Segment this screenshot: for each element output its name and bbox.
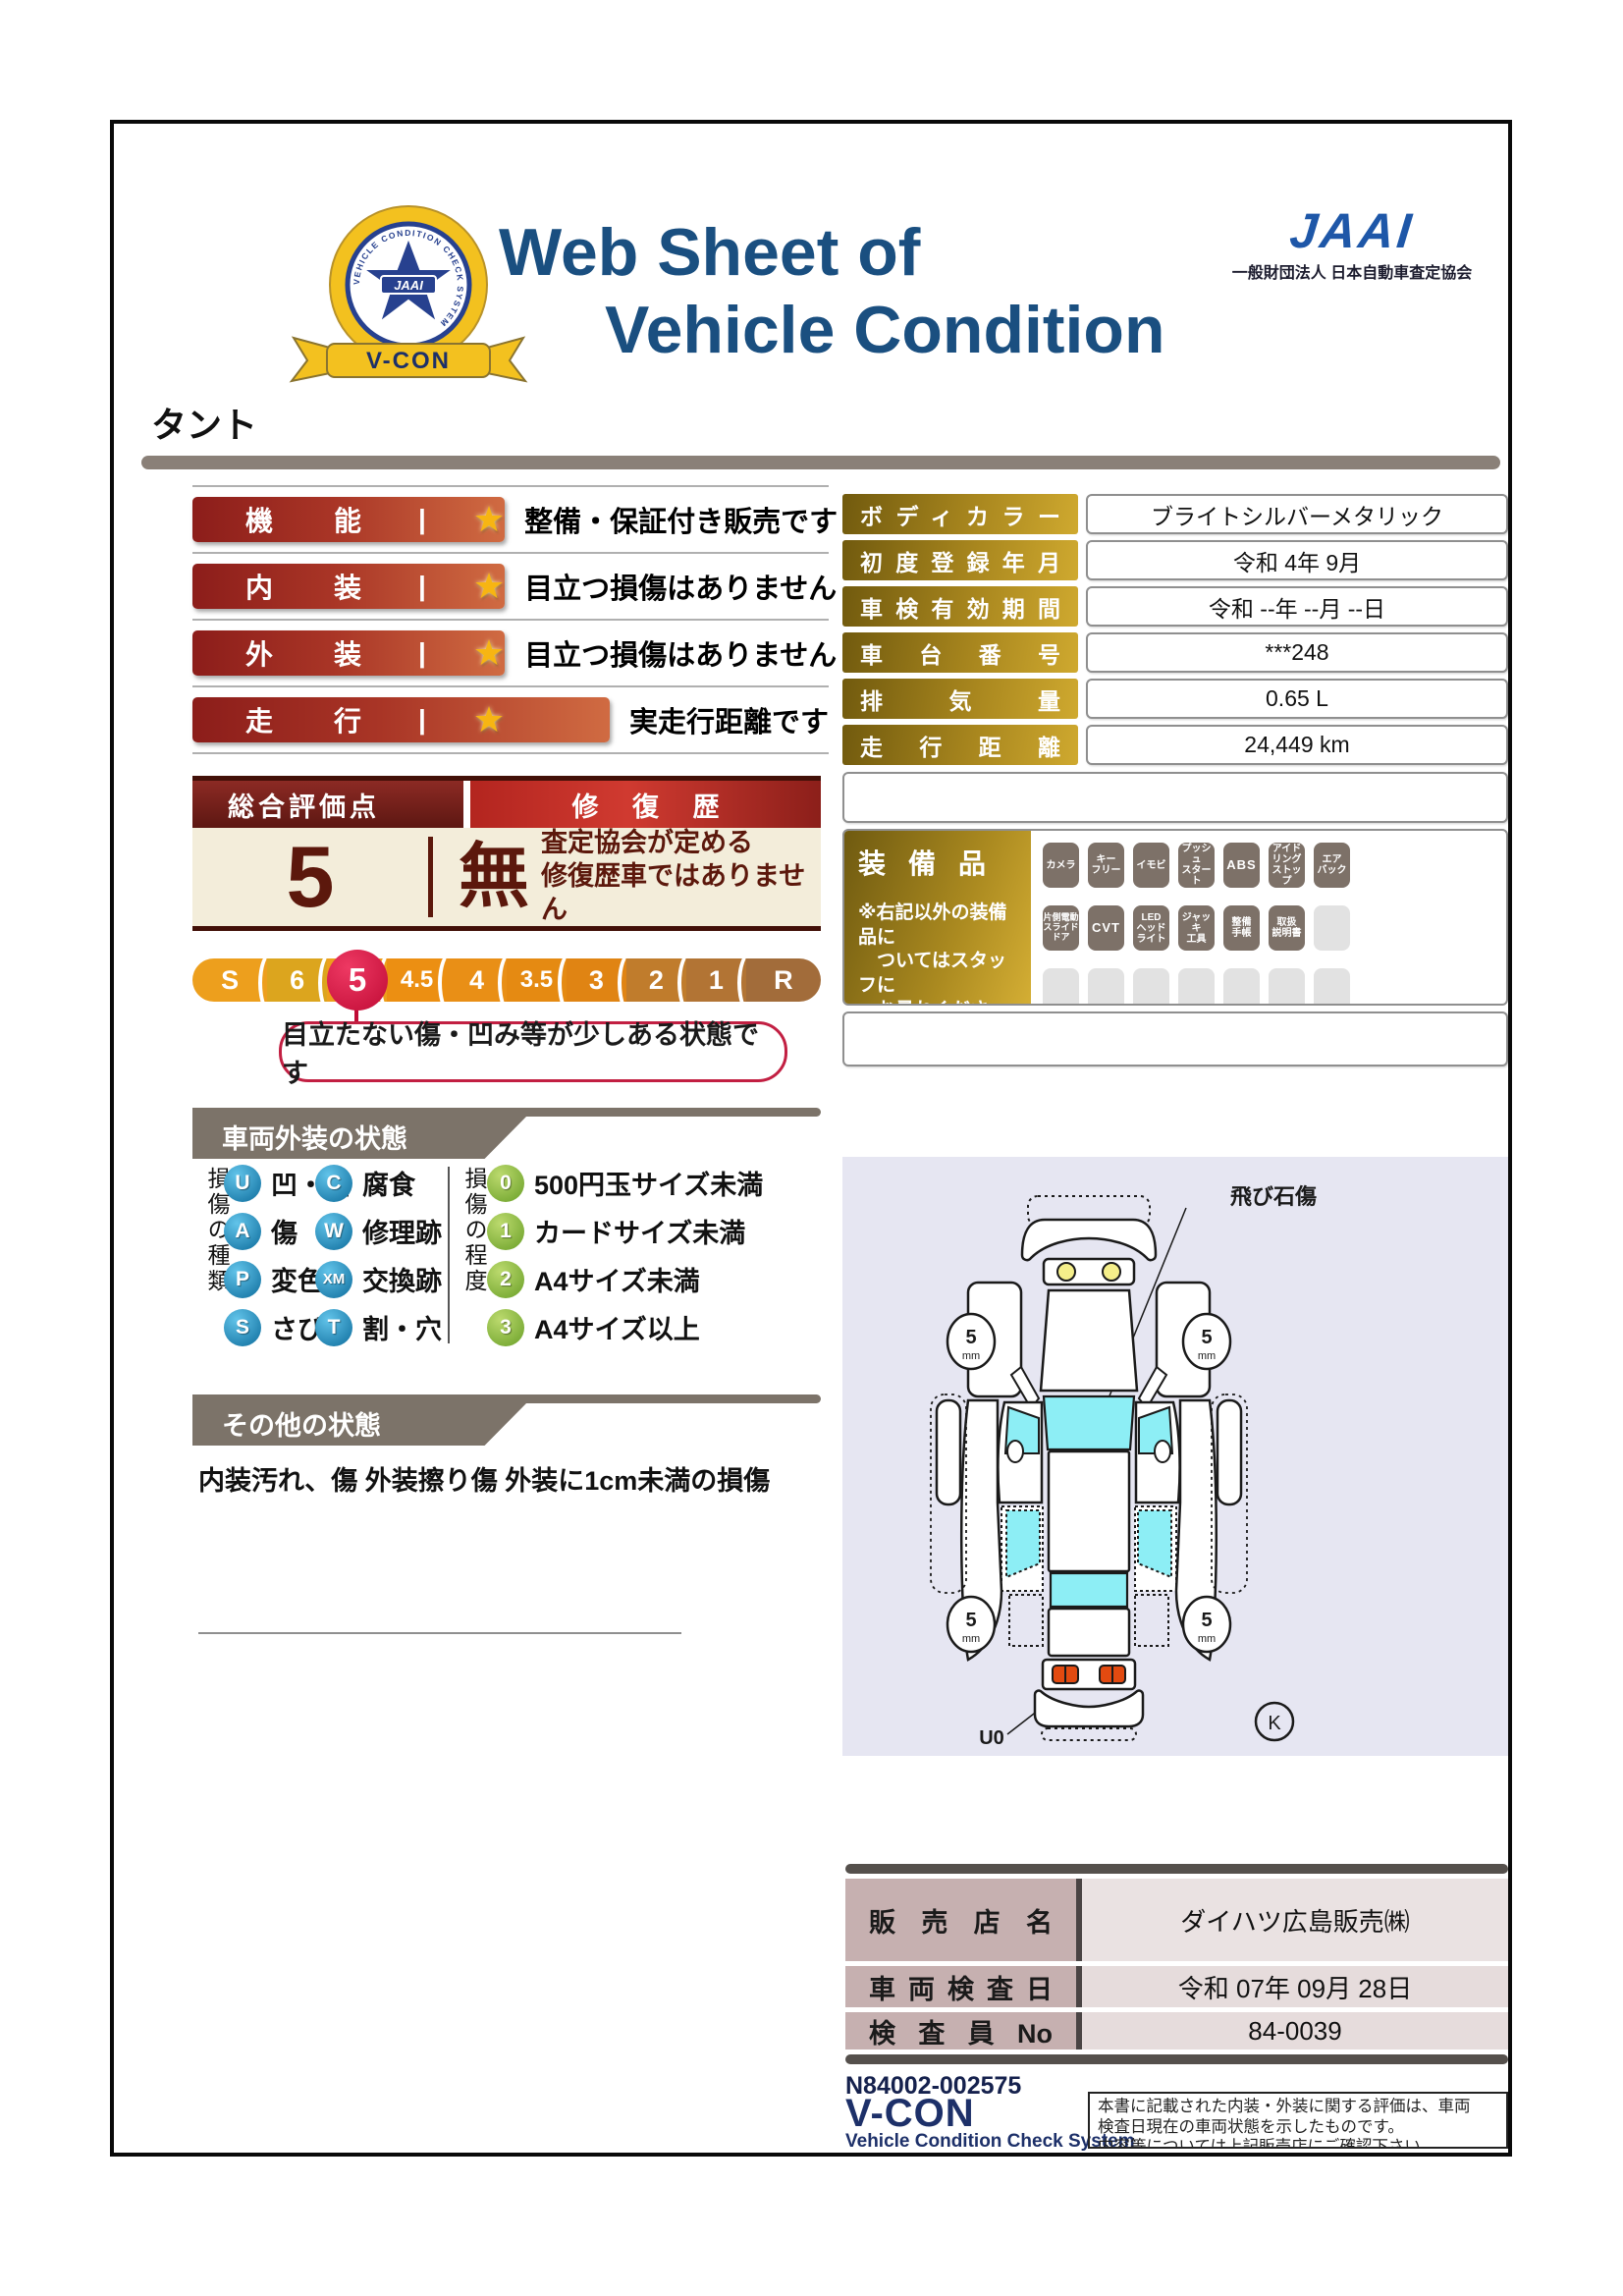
equipment-label-panel: 装備品 ※右記以外の装備品に ついてはスタッフに お尋ねください。 (844, 831, 1031, 1004)
hood-panel (1041, 1290, 1137, 1391)
other-section-title: その他の状態 (192, 1401, 528, 1446)
info-blank-box (842, 772, 1508, 823)
damage-label: 飛び石傷 (1230, 1184, 1317, 1209)
corner-mark: K (1268, 1713, 1281, 1734)
degree-code-ball: 2 (487, 1261, 524, 1298)
rating-label: 機能 (245, 500, 361, 539)
equipment-empty-cell (1043, 968, 1079, 1006)
legend-degree-2: 2 A4サイズ未満 (487, 1260, 700, 1298)
wheel-note-unit: mm (1198, 1633, 1216, 1645)
legend-label: 交換跡 (362, 1260, 442, 1298)
rating-label: 内装 (245, 567, 361, 606)
headlight-left (1057, 1263, 1075, 1281)
degree-code-ball: 3 (487, 1309, 524, 1346)
rating-label: 外装 (245, 633, 361, 673)
info-row-mileage: 走行距離 24,449 km (842, 725, 1508, 765)
rating-pipe: | (418, 571, 426, 602)
rear-window-glass (1051, 1573, 1127, 1607)
equipment-empty-cell (1088, 968, 1124, 1006)
page-title-line2: Vehicle Condition (605, 292, 1165, 369)
vcon-badge-logo: VEHICLE CONDITION CHECK SYSTEM JAAI V-CO… (276, 198, 536, 410)
damage-code-ball: S (224, 1309, 261, 1346)
wheel-note-value: 5 (1201, 1610, 1212, 1631)
repair-history-value: 無 (459, 842, 529, 912)
star-icon: ★ (473, 499, 505, 540)
svg-text:5: 5 (1201, 1610, 1212, 1631)
svg-text:mm: mm (1198, 1633, 1216, 1645)
degree-code-ball: 1 (487, 1213, 524, 1250)
equipment-note: ※右記以外の装備品に ついてはスタッフに お尋ねください。 (858, 902, 1017, 1006)
repair-history-label: 修復歴 (572, 786, 720, 824)
wheel-note-value: 5 (965, 1610, 976, 1631)
star-icon: ★ (473, 566, 505, 607)
equipment-blank-box (842, 1011, 1508, 1066)
equipment-badge-manual: 取扱 説明書 (1269, 905, 1305, 951)
info-value: 令和 --年 --月 --日 (1086, 586, 1508, 627)
info-value: ブライトシルバーメタリック (1086, 494, 1508, 534)
dealer-table: 販売店名 ダイハツ広島販売㈱ 車両検査日 令和 07年 09月 28日 検査員N… (845, 1864, 1508, 2064)
info-label: 車検有効期間 (842, 586, 1078, 627)
car-damage-diagram: 5 mm 5 mm 5 mm 5 mm 飛び石傷 U0 K (842, 1157, 1508, 1756)
svg-text:5: 5 (965, 1327, 976, 1348)
equipment-row-2: 片側電動 スライド ドア CVT LED ヘッド ライト ジャッキ 工具 整備 … (1043, 905, 1350, 951)
repair-history-note: 査定協会が定める 修復歴車ではありません (541, 827, 821, 926)
damage-degrees-title: 損傷の程度 (458, 1167, 491, 1294)
legend-label: A4サイズ以上 (534, 1308, 700, 1346)
rating-pipe: | (418, 704, 426, 736)
repair-history-content: 無 査定協会が定める 修復歴車ではありません (433, 827, 821, 926)
legend-type-XM: XM 交換跡 (315, 1260, 442, 1298)
equipment-empty-cell (1223, 968, 1260, 1006)
equipment-badge-keyfree: キー フリー (1088, 843, 1124, 888)
star-icon: ★ (473, 699, 505, 740)
svg-text:mm: mm (962, 1633, 980, 1645)
legend-divider (448, 1167, 450, 1343)
svg-text:5: 5 (1201, 1327, 1212, 1348)
equipment-row-1: カメラ キー フリー イモビ プッシュ スタート ABS アイド リング ストッ… (1043, 843, 1350, 888)
equipment-title: 装備品 (858, 843, 986, 882)
damage-code-label: U0 (979, 1727, 1004, 1749)
page-title-line1: Web Sheet of (499, 215, 920, 290)
score-scale: S 6 4.5 4 3.5 3 2 1 R 5 (192, 958, 821, 1002)
legend-type-T: T 割・穴 (315, 1308, 442, 1346)
sill-right (1217, 1400, 1241, 1504)
rating-bar: 走行 | ★ (192, 697, 610, 742)
legend-label: A4サイズ未満 (534, 1260, 700, 1298)
svg-text:5: 5 (965, 1610, 976, 1631)
legend-label: カードサイズ未満 (534, 1212, 745, 1250)
sill-left (937, 1400, 960, 1504)
equipment-badge-immobilizer: イモビ (1133, 843, 1169, 888)
sheet-frame: VEHICLE CONDITION CHECK SYSTEM JAAI V-CO… (110, 120, 1512, 2157)
roof-panel (1049, 1451, 1129, 1571)
disclaimer-line1: 本書に記載された内装・外装に関する評価は、車両 (1098, 2097, 1498, 2117)
legend-label: 修理跡 (362, 1212, 442, 1250)
disclaimer-box: 本書に記載された内装・外装に関する評価は、車両 検査日現在の車両状態を示したもの… (1088, 2092, 1508, 2149)
headlight-right (1103, 1263, 1120, 1281)
scale-segment-R: R (746, 958, 821, 1002)
info-row-first-registration: 初度登録年月 令和 4年 9月 (842, 540, 1508, 580)
rating-bar: 内装 | ★ (192, 564, 505, 609)
dealer-row-inspector-no: 検査員No 84-0039 (845, 2012, 1508, 2050)
rating-bar: 機能 | ★ (192, 497, 505, 542)
equipment-row-3 (1043, 968, 1350, 1006)
other-condition-text: 内装汚れ、傷 外装擦り傷 外装に1cm未満の損傷 (198, 1459, 770, 1498)
info-label: 排気量 (842, 679, 1078, 719)
dealer-label: 車両検査日 (845, 1966, 1076, 2007)
damage-code-ball: T (315, 1309, 352, 1346)
dealer-value: 令和 07年 09月 28日 (1076, 1966, 1508, 2007)
equipment-empty-cell (1178, 968, 1215, 1006)
rating-row-interior: 内装 | ★ 目立つ損傷はありません (192, 552, 829, 619)
equipment-empty-cell (1269, 968, 1305, 1006)
equipment-badge-pushstart: プッシュ スタート (1178, 843, 1215, 888)
info-value: 令和 4年 9月 (1086, 540, 1508, 580)
equipment-badge-powerslidedoor: 片側電動 スライド ドア (1043, 905, 1079, 951)
car-diagram-svg: 5 mm 5 mm 5 mm 5 mm 飛び石傷 U0 K (842, 1157, 1508, 1756)
equipment-empty-cell (1133, 968, 1169, 1006)
info-label: 走行距離 (842, 725, 1078, 765)
rating-row-exterior: 外装 | ★ 目立つ損傷はありません (192, 619, 829, 685)
info-label: 車台番号 (842, 632, 1078, 673)
info-value: 0.65 L (1086, 679, 1508, 719)
legend-type-A: A 傷 (224, 1212, 298, 1250)
rating-row-function: 機能 | ★ 整備・保証付き販売です (192, 485, 829, 552)
star-icon: ★ (473, 632, 505, 674)
equipment-badge-idlingstop: アイド リング ストップ (1269, 843, 1305, 888)
legend-type-W: W 修理跡 (315, 1212, 442, 1250)
info-label: 初度登録年月 (842, 540, 1078, 580)
info-value: 24,449 km (1086, 725, 1508, 765)
legend-label: 500円玉サイズ未満 (534, 1164, 763, 1202)
rear-bumper (1035, 1691, 1143, 1726)
rating-description: 整備・保証付き販売です (524, 499, 838, 540)
badge-ribbon-text: V-CON (366, 348, 451, 374)
jaai-logo: JAAI (1199, 206, 1504, 255)
dealer-row-inspection-date: 車両検査日 令和 07年 09月 28日 (845, 1966, 1508, 2007)
equipment-badge-abs: ABS (1223, 843, 1260, 888)
repair-note-line2: 修復歴車ではありません (541, 861, 805, 924)
rating-pipe: | (418, 504, 426, 535)
other-section-line (198, 1632, 681, 1634)
damage-code-ball: U (224, 1165, 261, 1202)
damage-code-ball: A (224, 1213, 261, 1250)
equipment-badge-servicebook: 整備 手帳 (1223, 905, 1260, 951)
dealer-label: 販売店名 (845, 1879, 1076, 1961)
page-title: Web Sheet of Vehicle Condition (499, 214, 1165, 369)
overall-body: 5 無 査定協会が定める 修復歴車ではありません (192, 828, 821, 926)
damage-code-ball: XM (315, 1261, 352, 1298)
dealer-table-top-bar (845, 1864, 1508, 1874)
legend-type-S: S さび (224, 1308, 324, 1346)
equipment-badge-airbag: エア バック (1314, 843, 1350, 888)
selected-score-marker: 5 (327, 950, 388, 1011)
equipment-badge-cvt: CVT (1088, 905, 1124, 951)
info-row-body-color: ボディカラー ブライトシルバーメタリック (842, 494, 1508, 534)
rating-pipe: | (418, 637, 426, 669)
overall-score-value: 5 (192, 834, 428, 920)
front-bumper (1022, 1220, 1156, 1260)
overall-header: 総合評価点 修復歴 (192, 781, 821, 828)
equipment-badge-camera: カメラ (1043, 843, 1079, 888)
vcon-footer-logo: V-CON (845, 2094, 975, 2133)
dealer-row-shop: 販売店名 ダイハツ広島販売㈱ (845, 1879, 1508, 1961)
overall-score-header: 総合評価点 (192, 781, 463, 828)
legend-degree-3: 3 A4サイズ以上 (487, 1308, 700, 1346)
score-scale-bar: S 6 4.5 4 3.5 3 2 1 R (192, 958, 821, 1002)
legend-label: 割・穴 (362, 1308, 442, 1346)
mirror-left (1007, 1441, 1023, 1462)
equipment-badge-jacktools: ジャッキ 工具 (1178, 905, 1215, 951)
equipment-empty-cell (1314, 905, 1350, 951)
equipment-empty-cell (1314, 968, 1350, 1006)
scale-segment-S: S (192, 958, 267, 1002)
wheel-note-unit: mm (962, 1350, 980, 1362)
legend-type-P: P 変色 (224, 1260, 324, 1298)
rating-label: 走行 (245, 700, 361, 739)
dealer-value: 84-0039 (1076, 2012, 1508, 2050)
rear-bumper-dotted (1042, 1728, 1136, 1740)
tailgate-panel (1049, 1609, 1129, 1656)
rating-description: 実走行距離です (629, 699, 829, 740)
disclaimer-line3: 内容等については上記販売店にご確認下さい。 (1098, 2137, 1498, 2149)
header-divider (141, 456, 1500, 469)
legend-type-C: C 腐食 (315, 1164, 415, 1202)
jaai-logo-block: JAAI 一般財団法人 日本自動車査定協会 (1202, 206, 1502, 283)
wheel-note-unit: mm (962, 1633, 980, 1645)
rating-rows: 機能 | ★ 整備・保証付き販売です 内装 | ★ 目立つ損傷はありません 外装… (192, 485, 829, 754)
vehicle-name: タント (151, 397, 257, 448)
exterior-section-title: 車両外装の状態 (192, 1115, 528, 1159)
wheel-note-unit: mm (1198, 1350, 1216, 1362)
overall-score-block: 総合評価点 修復歴 5 無 査定協会が定める 修復歴車ではありません (192, 776, 821, 931)
info-row-chassis-number: 車台番号 ***248 (842, 632, 1508, 673)
score-callout: 目立たない傷・凹み等が少しある状態です (279, 1021, 787, 1082)
wheel-note-value: 5 (1201, 1327, 1212, 1348)
badge-center-text: JAAI (394, 278, 423, 293)
rating-description: 目立つ損傷はありません (524, 632, 837, 674)
damage-code-ball: W (315, 1213, 352, 1250)
legend-label: 腐食 (362, 1164, 415, 1202)
info-label: ボディカラー (842, 494, 1078, 534)
info-value: ***248 (1086, 632, 1508, 673)
svg-text:mm: mm (1198, 1350, 1216, 1362)
legend-label: 傷 (271, 1212, 298, 1250)
rating-bar: 外装 | ★ (192, 630, 505, 676)
dealer-value: ダイハツ広島販売㈱ (1076, 1879, 1508, 1961)
info-row-inspection-validity: 車検有効期間 令和 --年 --月 --日 (842, 586, 1508, 627)
damage-code-ball: C (315, 1165, 352, 1202)
degree-code-ball: 0 (487, 1165, 524, 1202)
overall-header-gap (463, 781, 470, 828)
dealer-label: 検査員No (845, 2012, 1076, 2050)
windshield-glass (1044, 1396, 1134, 1449)
legend-degree-1: 1 カードサイズ未満 (487, 1212, 745, 1250)
jaai-subtitle: 一般財団法人 日本自動車査定協会 (1202, 259, 1502, 283)
dealer-table-bottom-bar (845, 2054, 1508, 2064)
legend-degree-0: 0 500円玉サイズ未満 (487, 1164, 763, 1202)
equipment-block: 装備品 ※右記以外の装備品に ついてはスタッフに お尋ねください。 カメラ キー… (842, 829, 1508, 1006)
rear-quarter-dotted-left (1009, 1595, 1043, 1646)
svg-text:mm: mm (962, 1350, 980, 1362)
repair-note-line1: 査定協会が定める (541, 828, 753, 857)
repair-history-header: 修復歴 (470, 781, 821, 828)
damage-code-ball: P (224, 1261, 261, 1298)
mirror-right (1155, 1441, 1170, 1462)
equipment-badge-ledheadlight: LED ヘッド ライト (1133, 905, 1169, 951)
disclaimer-line2: 検査日現在の車両状態を示したものです。 (1098, 2117, 1498, 2138)
rating-description: 目立つ損傷はありません (524, 566, 837, 607)
info-row-displacement: 排気量 0.65 L (842, 679, 1508, 719)
wheel-note-value: 5 (965, 1327, 976, 1348)
rear-quarter-dotted-right (1135, 1595, 1168, 1646)
rating-row-mileage: 走行 | ★ 実走行距離です (192, 685, 829, 754)
